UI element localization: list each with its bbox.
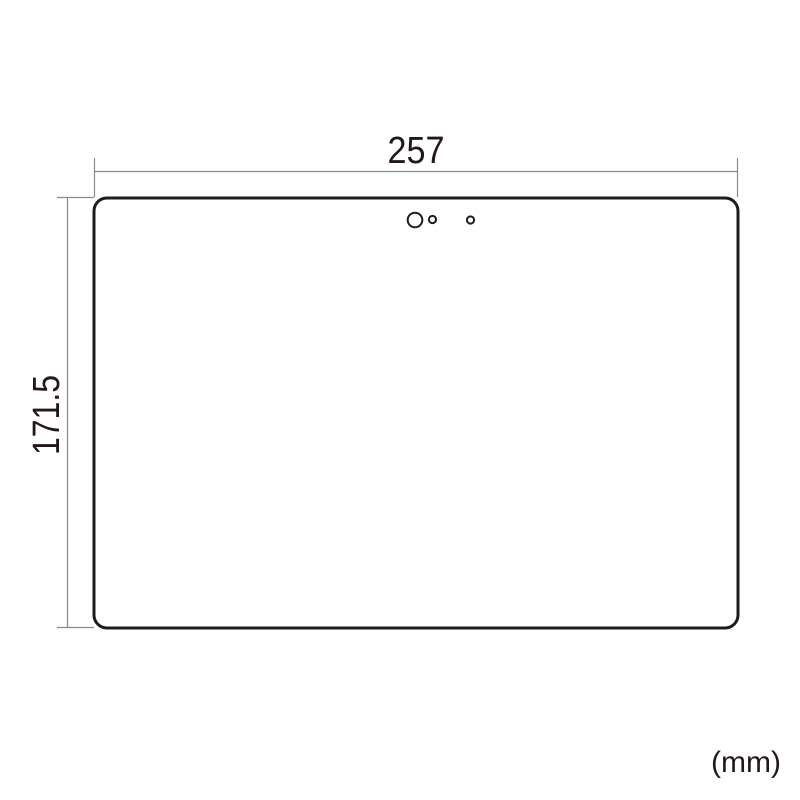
sensor-hole-icon-1 <box>429 216 436 223</box>
camera-hole-icon <box>408 213 423 228</box>
sensor-hole-icon-2 <box>467 216 474 223</box>
dimension-diagram-page: 257 171.5 (mm) <box>0 0 800 800</box>
width-dimension-group: 257 <box>94 130 738 197</box>
width-dimension-label: 257 <box>388 130 445 172</box>
device-outline <box>94 198 738 628</box>
dimension-diagram: 257 171.5 (mm) <box>0 0 800 800</box>
height-dimension-group: 171.5 <box>26 197 94 628</box>
unit-label: (mm) <box>711 746 781 779</box>
height-dimension-label: 171.5 <box>26 375 68 455</box>
